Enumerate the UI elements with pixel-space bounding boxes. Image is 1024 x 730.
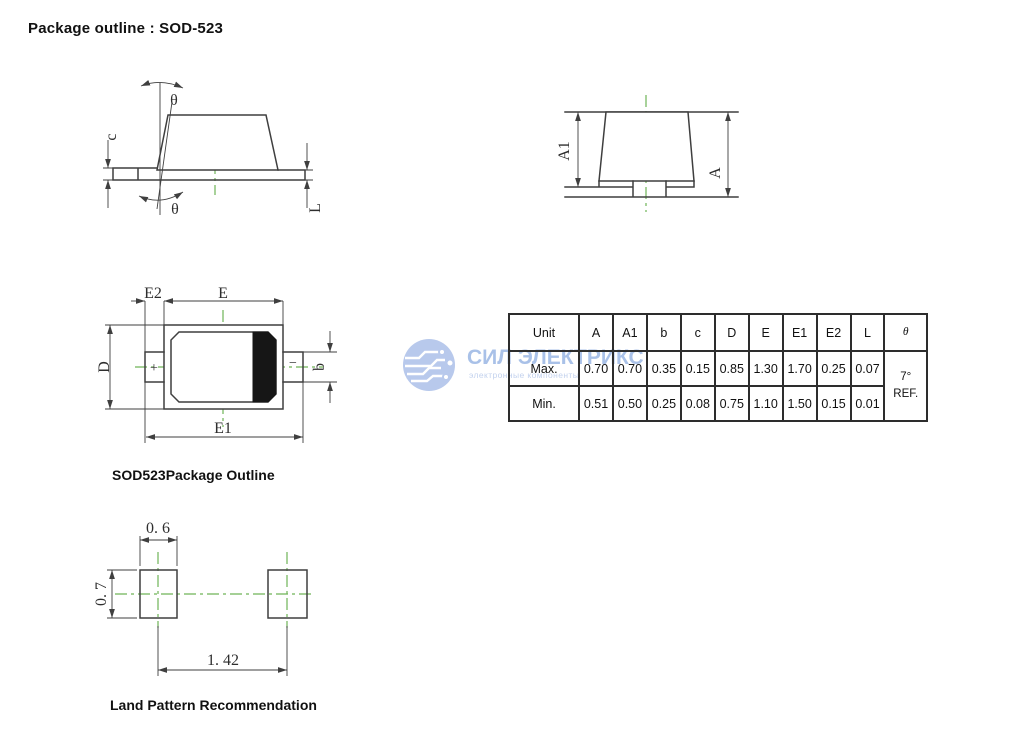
table-cell: 0.15 [817, 386, 851, 421]
dim-label-a1: A1 [556, 141, 573, 161]
extension-lines [107, 536, 287, 676]
dim-label-d: D [96, 361, 113, 373]
table-cell: 0.07 [851, 351, 885, 386]
polarity-minus: − [289, 356, 297, 371]
dim-label-l: L [307, 203, 324, 213]
dim-label-b: b [311, 363, 328, 371]
table-row-label: Max. [509, 351, 579, 386]
table-cell: 0.50 [613, 386, 647, 421]
table-row-label: Min. [509, 386, 579, 421]
dim-label-pad-width: 0. 6 [146, 520, 170, 537]
table-cell: 0.70 [613, 351, 647, 386]
theta-value: 7° [900, 371, 911, 383]
table-cell: 0.25 [817, 351, 851, 386]
land-pattern-drawing: 0. 6 0. 7 1. 42 [85, 510, 345, 690]
table-header-cell: E [749, 314, 783, 351]
dim-label-theta-top: θ [170, 92, 178, 109]
top-view-drawing: + − E2 E D b E1 [95, 283, 345, 458]
side-view-drawing: θ θ c L [95, 58, 330, 233]
table-header-row: Unit A A1 b c D E E1 E2 L θ [509, 314, 927, 351]
table-cell: 1.70 [783, 351, 817, 386]
dim-label-e1: E1 [214, 420, 232, 437]
package-body-front [599, 112, 694, 181]
c-extension-lines [103, 168, 113, 180]
table-cell: 1.10 [749, 386, 783, 421]
theta-ref: REF. [893, 388, 918, 400]
theta-top-arc [141, 82, 183, 88]
table-header-cell: A [579, 314, 613, 351]
table-cell: 1.30 [749, 351, 783, 386]
table-header-cell: E1 [783, 314, 817, 351]
table-header-cell: Unit [509, 314, 579, 351]
dim-label-pad-height: 0. 7 [93, 582, 110, 606]
page-title: Package outline : SOD-523 [28, 20, 223, 37]
polarity-plus: + [150, 361, 158, 376]
dim-label-a: A [707, 167, 724, 179]
front-view-drawing: A1 A [550, 85, 750, 220]
table-header-cell: A1 [613, 314, 647, 351]
table-cell: 0.70 [579, 351, 613, 386]
dim-label-theta-bottom: θ [171, 201, 179, 218]
bottom-tab-outline [565, 181, 738, 197]
table-cell: 0.75 [715, 386, 749, 421]
table-cell-theta-value: 7° REF. [884, 351, 927, 421]
dimensions-table: Unit A A1 b c D E E1 E2 L θ Max. 0.70 0.… [508, 313, 928, 422]
table-cell: 0.15 [681, 351, 715, 386]
table-cell: 0.35 [647, 351, 681, 386]
table-header-cell: c [681, 314, 715, 351]
table-header-cell: b [647, 314, 681, 351]
caption-land-pattern: Land Pattern Recommendation [110, 697, 317, 713]
dim-label-pitch: 1. 42 [207, 652, 239, 669]
package-body-side [157, 115, 278, 170]
table-header-cell-theta: θ [884, 314, 927, 351]
table-cell: 1.50 [783, 386, 817, 421]
table-cell: 0.51 [579, 386, 613, 421]
caption-package-outline: SOD523Package Outline [112, 467, 275, 483]
dim-label-e: E [218, 285, 228, 302]
l-extension-lines [305, 170, 313, 180]
table-cell: 0.85 [715, 351, 749, 386]
table-cell: 0.25 [647, 386, 681, 421]
table-cell: 0.01 [851, 386, 885, 421]
dim-label-c: c [103, 133, 120, 140]
table-header-cell: E2 [817, 314, 851, 351]
table-cell: 0.08 [681, 386, 715, 421]
table-header-cell: L [851, 314, 885, 351]
watermark-logo-icon [401, 336, 459, 394]
dim-label-e2: E2 [144, 285, 162, 302]
cathode-band [253, 332, 276, 402]
datasheet-page: Package outline : SOD-523 θ θ c L [0, 0, 1024, 730]
table-header-cell: D [715, 314, 749, 351]
table-row-max: Max. 0.70 0.70 0.35 0.15 0.85 1.30 1.70 … [509, 351, 927, 386]
table-row-min: Min. 0.51 0.50 0.25 0.08 0.75 1.10 1.50 … [509, 386, 927, 421]
theta-bottom-arc [139, 192, 183, 200]
